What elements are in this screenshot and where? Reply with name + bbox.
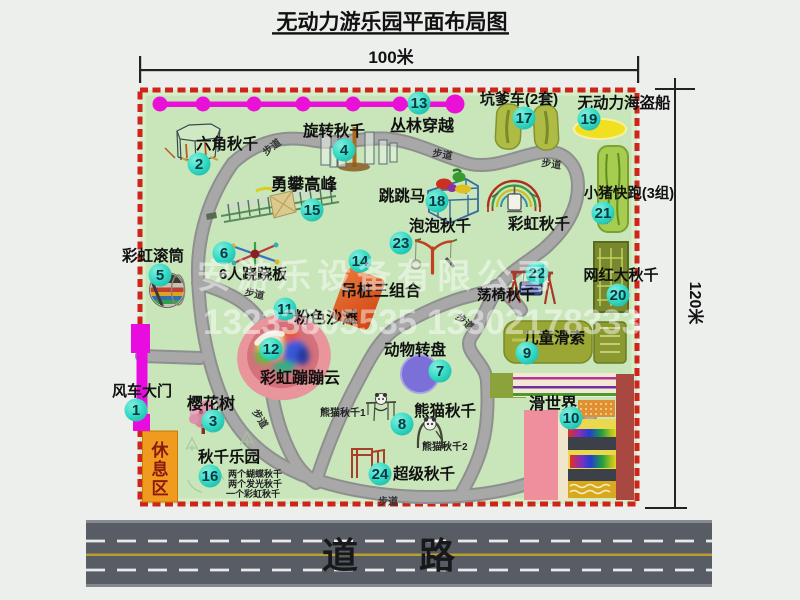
svg-text:15: 15 — [304, 202, 321, 219]
svg-text:19: 19 — [581, 111, 598, 128]
svg-text:3: 3 — [209, 413, 217, 430]
svg-text:两个蝴蝶秋千: 两个蝴蝶秋千 — [228, 468, 282, 479]
svg-text:两个发光秋千: 两个发光秋千 — [228, 478, 282, 489]
svg-text:23: 23 — [393, 235, 410, 252]
svg-text:10: 10 — [563, 410, 580, 427]
svg-text:步道: 步道 — [378, 495, 398, 508]
svg-text:超级秋千: 超级秋千 — [392, 464, 456, 483]
svg-text:18: 18 — [429, 193, 446, 210]
svg-text:秋千乐园: 秋千乐园 — [198, 447, 260, 466]
svg-text:安游乐设备有限公司: 安游乐设备有限公司 — [197, 258, 557, 296]
svg-text:5: 5 — [156, 267, 164, 284]
svg-text:熊猫秋千2: 熊猫秋千2 — [422, 440, 468, 453]
svg-text:丛林穿越: 丛林穿越 — [390, 116, 455, 135]
svg-text:休: 休 — [151, 440, 170, 460]
svg-text:熊猫秋千: 熊猫秋千 — [414, 401, 477, 420]
svg-text:16: 16 — [202, 468, 219, 485]
svg-text:彩虹秋千: 彩虹秋千 — [507, 214, 571, 233]
svg-text:坑爹车(2套): 坑爹车(2套) — [480, 90, 558, 108]
svg-text:小猪快跑(3组): 小猪快跑(3组) — [584, 184, 674, 202]
svg-text:网红大秋千: 网红大秋千 — [583, 266, 658, 284]
svg-text:一个彩虹秋千: 一个彩虹秋千 — [226, 488, 280, 499]
svg-text:24: 24 — [372, 466, 389, 483]
svg-text:20: 20 — [610, 287, 627, 304]
svg-text:六角秋千: 六角秋千 — [196, 134, 259, 153]
svg-text:熊猫秋千1: 熊猫秋千1 — [320, 406, 366, 419]
svg-text:旋转秋千: 旋转秋千 — [302, 121, 366, 140]
svg-text:8: 8 — [398, 416, 406, 433]
svg-text:2: 2 — [195, 156, 203, 173]
svg-text:勇攀高峰: 勇攀高峰 — [271, 174, 338, 194]
svg-text:动物转盘: 动物转盘 — [384, 340, 447, 359]
svg-text:100米: 100米 — [368, 47, 414, 67]
svg-text:路: 路 — [419, 535, 456, 576]
svg-text:21: 21 — [595, 205, 612, 222]
svg-text:120米: 120米 — [686, 282, 705, 326]
svg-text:9: 9 — [523, 345, 531, 362]
svg-text:无动力游乐园平面布局图: 无动力游乐园平面布局图 — [277, 10, 508, 34]
svg-text:彩虹蹦蹦云: 彩虹蹦蹦云 — [259, 368, 340, 387]
svg-text:息: 息 — [152, 459, 169, 479]
svg-text:1: 1 — [132, 402, 140, 419]
svg-text:风车大门: 风车大门 — [112, 382, 172, 400]
svg-text:4: 4 — [340, 142, 349, 159]
svg-text:13: 13 — [411, 95, 428, 112]
svg-text:区: 区 — [152, 479, 169, 498]
svg-text:13233805535 13302178333: 13233805535 13302178333 — [203, 303, 641, 342]
svg-text:12: 12 — [263, 341, 280, 358]
svg-text:7: 7 — [436, 363, 444, 380]
svg-text:泡泡秋千: 泡泡秋千 — [409, 216, 472, 235]
svg-text:17: 17 — [516, 110, 533, 127]
svg-text:跳跳马: 跳跳马 — [379, 186, 426, 205]
svg-text:彩虹滚筒: 彩虹滚筒 — [121, 246, 184, 265]
svg-text:道: 道 — [322, 535, 358, 576]
